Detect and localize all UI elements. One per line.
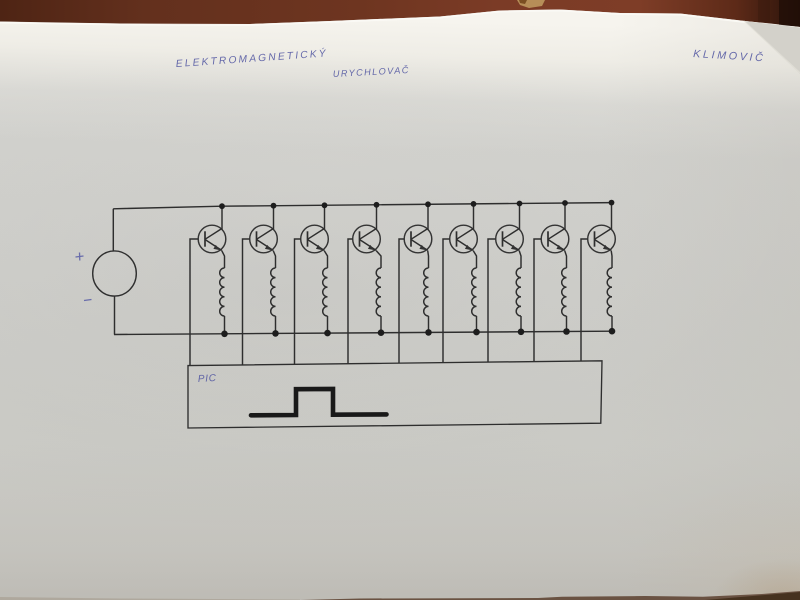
- svg-text:PIC: PIC: [198, 373, 217, 385]
- svg-text:URYCHLOVAČ: URYCHLOVAČ: [333, 65, 410, 79]
- svg-text:KLIMOVIČ: KLIMOVIČ: [693, 47, 766, 64]
- svg-text:ELEKTROMAGNETICKÝ: ELEKTROMAGNETICKÝ: [175, 46, 328, 70]
